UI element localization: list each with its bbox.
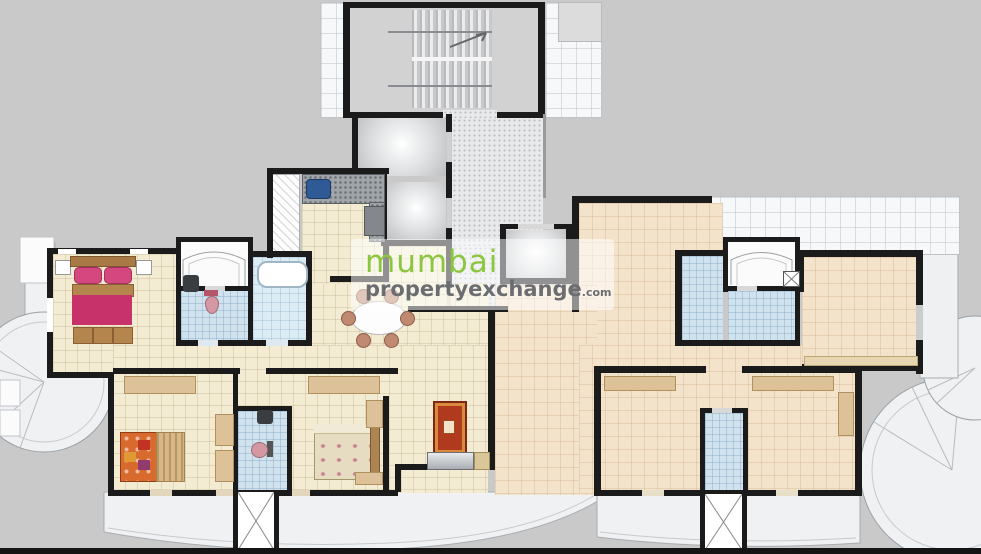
wall	[287, 406, 292, 496]
bed-blanket	[72, 295, 132, 325]
wall	[343, 2, 545, 8]
lift-2	[387, 182, 446, 240]
wall	[343, 2, 350, 118]
desk	[215, 414, 234, 446]
column-x	[233, 492, 279, 550]
wall	[572, 196, 712, 203]
window	[916, 305, 923, 340]
wall	[176, 237, 253, 242]
pillow	[74, 267, 102, 284]
brand-text: mumbai propertyexchange.com	[365, 246, 611, 304]
stove	[364, 206, 385, 236]
wall	[446, 114, 452, 132]
lift-door	[447, 132, 451, 162]
wall	[855, 366, 862, 496]
window	[47, 298, 53, 332]
wall	[446, 162, 452, 198]
wall	[113, 368, 240, 374]
balcony-door	[642, 490, 664, 496]
dining-chair	[356, 333, 371, 348]
desk	[215, 450, 234, 482]
terrace-slab	[558, 2, 602, 42]
wall	[395, 464, 401, 492]
column-x	[700, 494, 747, 550]
bed-woven-blanket	[156, 432, 185, 482]
wall	[248, 257, 253, 345]
balcony-door	[292, 490, 310, 496]
lift-door	[518, 224, 554, 229]
wall	[675, 250, 728, 256]
wall	[383, 396, 389, 492]
dining-chair	[400, 311, 415, 326]
column-x-small	[783, 271, 800, 287]
window	[58, 249, 76, 254]
wall	[723, 237, 728, 292]
rug-medallion	[443, 420, 455, 434]
tv-cabinet	[427, 452, 474, 470]
wall	[253, 251, 312, 257]
brand-suffix: .com	[582, 286, 612, 299]
side-table	[355, 472, 383, 485]
wall	[176, 237, 181, 345]
door	[712, 408, 732, 413]
door	[266, 340, 288, 346]
dining-chair	[384, 333, 399, 348]
wall	[266, 368, 398, 374]
wall	[538, 2, 545, 118]
wall	[108, 372, 114, 496]
side-cabinet	[474, 452, 490, 470]
stair-direction-arrow-icon	[446, 28, 492, 52]
wardrobe	[604, 376, 676, 391]
bathroom-3-floor	[728, 291, 795, 340]
bed-patch	[138, 460, 150, 470]
wall	[108, 490, 150, 496]
bed-foot-drawer	[73, 327, 93, 344]
wardrobe	[124, 376, 196, 394]
wall	[743, 408, 748, 496]
wardrobe	[308, 376, 380, 394]
bathroom-4-floor	[705, 413, 743, 490]
pillow	[104, 267, 132, 284]
stair-handrail	[388, 85, 492, 87]
washbasin	[257, 410, 273, 424]
brand-name-primary: mumbai	[365, 246, 611, 278]
wall	[306, 251, 312, 345]
bed-foot-drawer	[113, 327, 133, 344]
wall-thin	[543, 114, 546, 198]
balcony-door	[150, 490, 172, 496]
wall	[798, 490, 860, 496]
nightstand	[55, 260, 71, 275]
desk	[366, 400, 383, 428]
bed-foot-drawer	[93, 327, 113, 344]
window-seat	[804, 356, 918, 366]
wall	[675, 340, 800, 346]
service-duct	[270, 174, 300, 256]
door	[198, 340, 218, 346]
bed-patch	[138, 440, 150, 450]
wall	[700, 408, 705, 496]
wall	[497, 112, 545, 118]
wall	[47, 372, 113, 378]
wall-party	[488, 306, 495, 470]
balcony-door	[776, 490, 798, 496]
wall	[723, 237, 800, 242]
wall	[343, 112, 443, 118]
brand-name-secondary: propertyexchange.com	[365, 278, 611, 304]
floor-plan-canvas: mumbai propertyexchange.com	[0, 0, 981, 554]
balcony-door	[216, 490, 234, 496]
right-master-bedroom-floor	[802, 257, 916, 367]
wc-bowl	[251, 442, 268, 458]
bathtub	[257, 261, 308, 288]
wall	[594, 490, 642, 496]
wall	[916, 250, 923, 305]
wall	[594, 366, 706, 373]
wall	[797, 250, 923, 257]
dining-chair	[341, 311, 356, 326]
image-bottom-border	[0, 548, 981, 554]
kitchen-sink	[306, 179, 331, 199]
wall	[172, 490, 216, 496]
wall	[594, 366, 601, 496]
door	[737, 286, 757, 291]
lift-door	[447, 198, 451, 228]
washbasin	[183, 275, 199, 292]
desk	[838, 392, 854, 436]
wall	[267, 168, 273, 258]
window	[130, 249, 148, 254]
wardrobe	[752, 376, 834, 391]
wall	[176, 340, 312, 346]
wall	[675, 250, 682, 346]
bed-patch	[124, 452, 136, 462]
watermark-overlay: mumbai propertyexchange.com	[351, 239, 614, 310]
wall	[742, 366, 862, 373]
nightstand	[136, 260, 152, 275]
stair-landing-divider	[412, 57, 492, 61]
bathroom-2-floor	[682, 256, 723, 340]
bed-headboard	[70, 256, 136, 267]
wall	[795, 289, 800, 346]
